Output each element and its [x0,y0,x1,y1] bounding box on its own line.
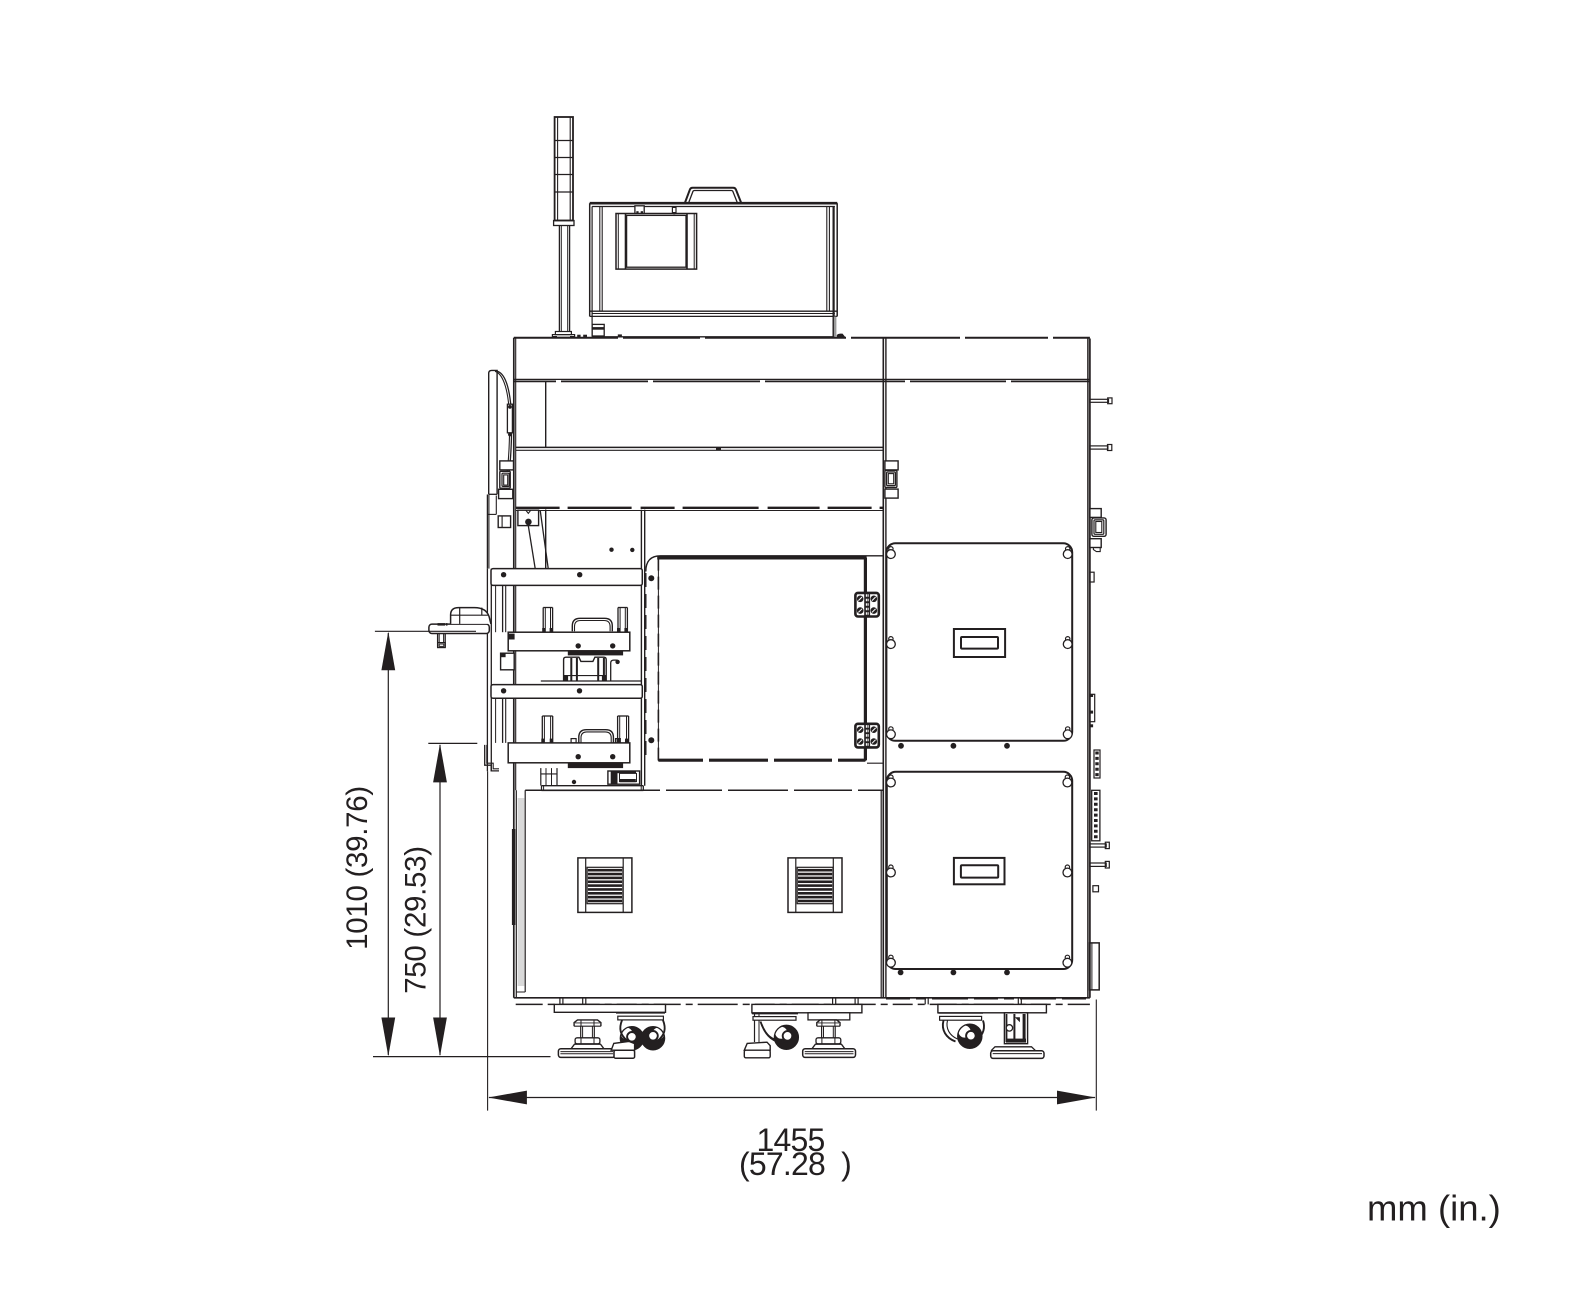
svg-text:(57.28 ): (57.28 ) [739,1146,851,1182]
svg-text:1010 (39.76): 1010 (39.76) [341,786,374,950]
svg-text:750 (29.53): 750 (29.53) [400,846,433,994]
svg-text:mm (in.): mm (in.) [1367,1188,1501,1229]
